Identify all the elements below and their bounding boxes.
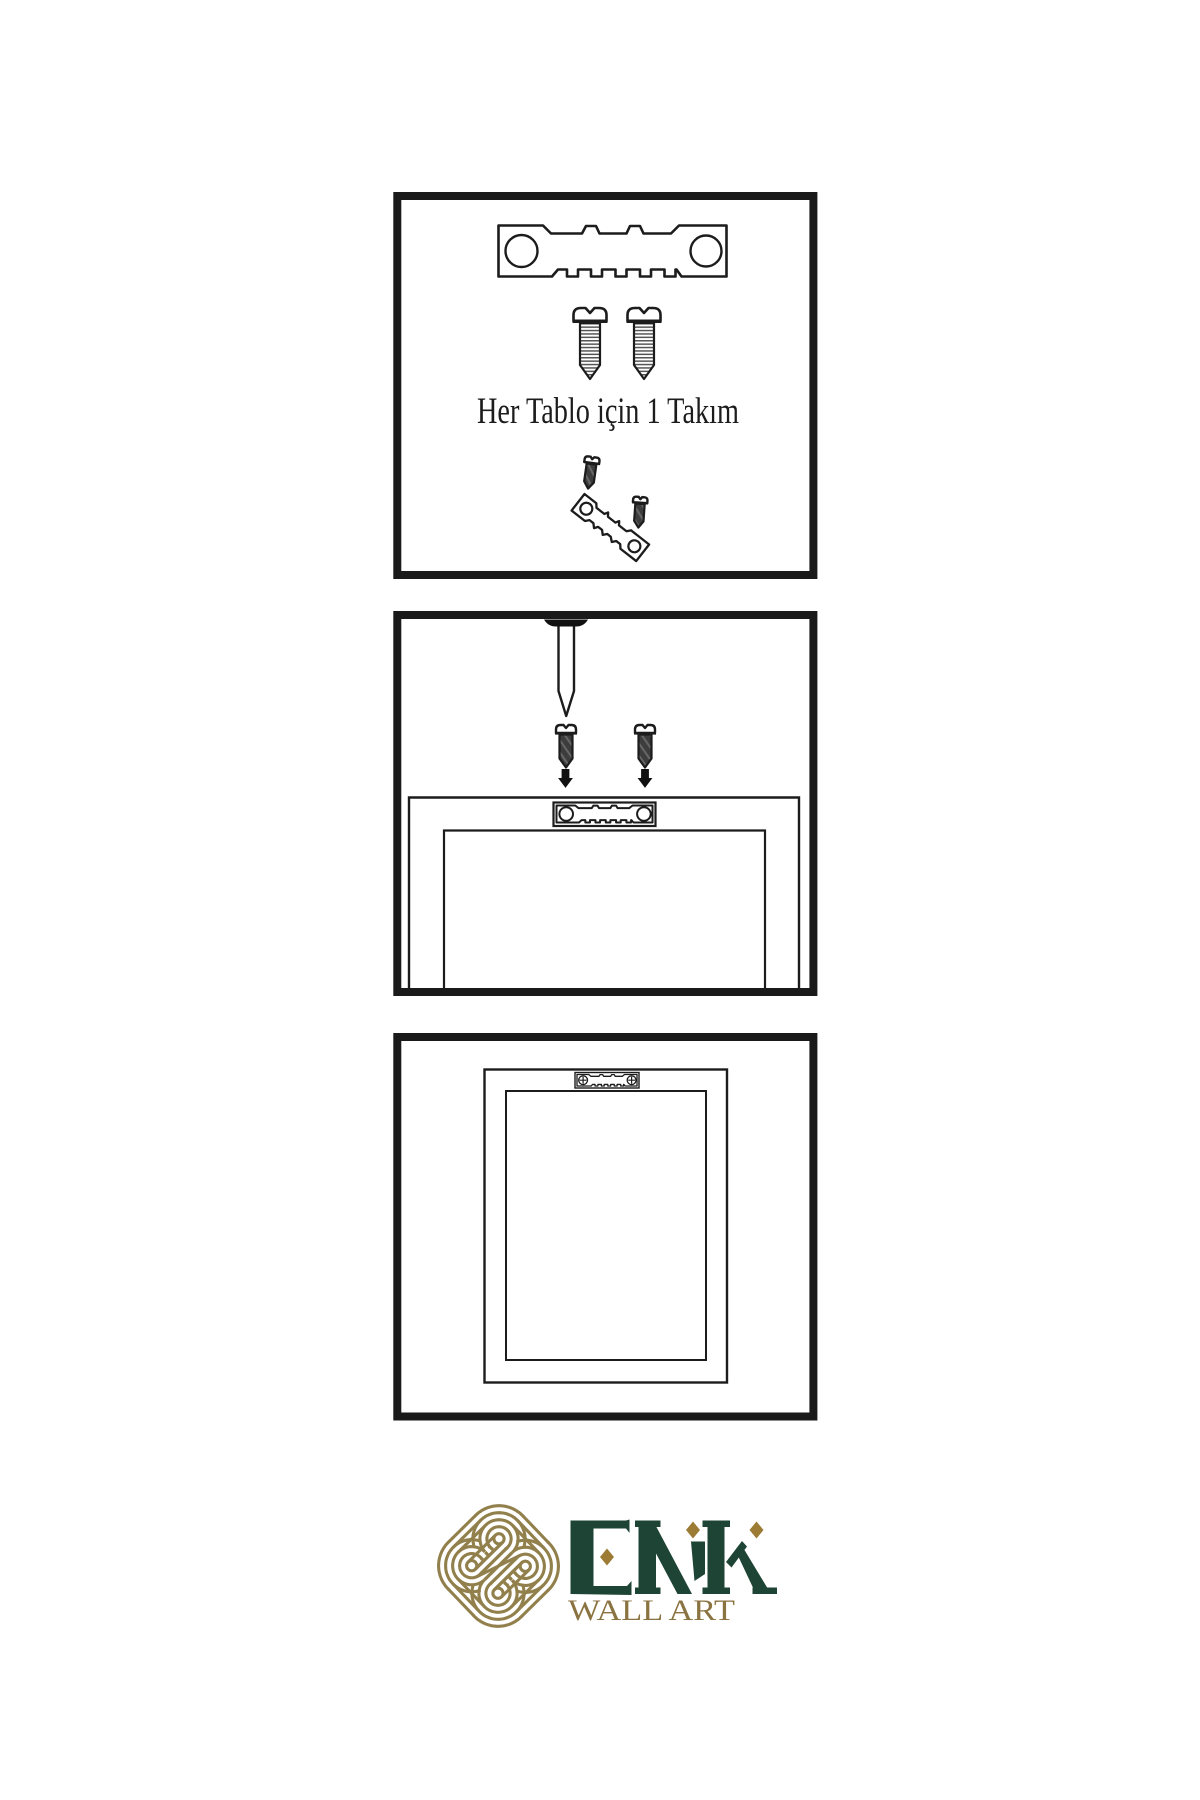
- svg-text:WALL ART: WALL ART: [568, 1594, 735, 1627]
- svg-text:Her Tablo için 1 Takım: Her Tablo için 1 Takım: [477, 391, 739, 432]
